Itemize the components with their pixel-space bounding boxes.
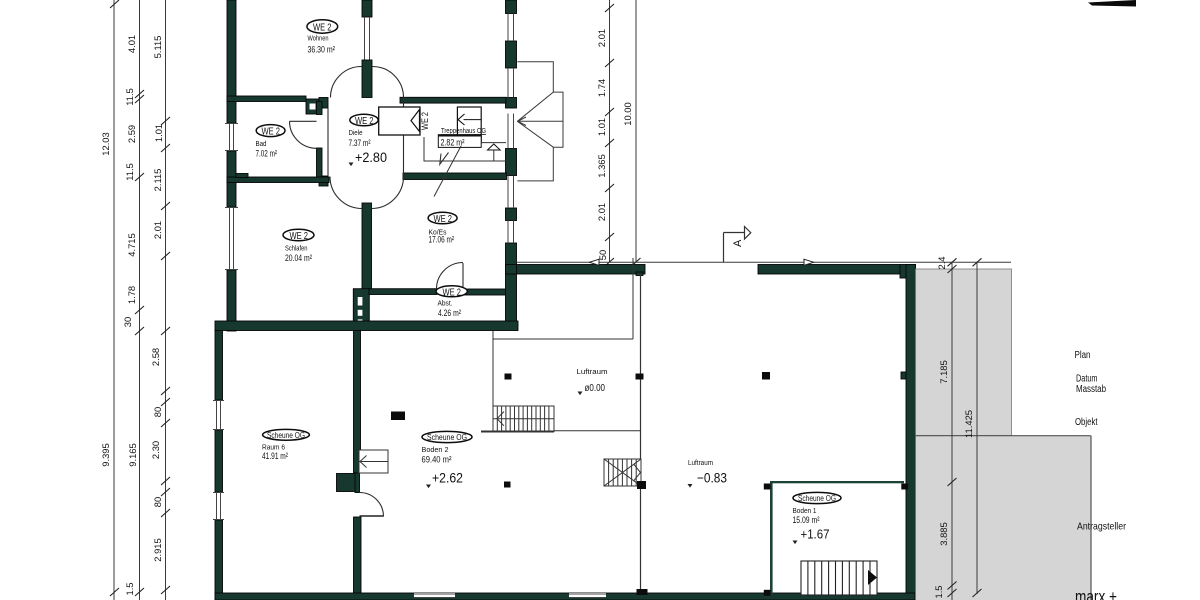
svg-text:12.03: 12.03 <box>100 132 111 155</box>
svg-text:11.5: 11.5 <box>124 88 135 106</box>
svg-text:15.09 m²: 15.09 m² <box>793 515 820 525</box>
svg-text:5.115: 5.115 <box>152 36 163 59</box>
svg-text:WE 2: WE 2 <box>262 126 281 138</box>
svg-text:ø0.00: ø0.00 <box>585 382 606 394</box>
svg-text:+1.67: +1.67 <box>801 527 830 542</box>
svg-text:WE 2: WE 2 <box>420 112 430 130</box>
svg-text:1.74: 1.74 <box>596 79 607 97</box>
svg-text:9.395: 9.395 <box>100 443 111 466</box>
svg-text:9.165: 9.165 <box>127 443 138 466</box>
svg-text:69.40 m²: 69.40 m² <box>422 455 452 465</box>
svg-text:7.37 m²: 7.37 m² <box>349 138 371 148</box>
svg-text:2.59: 2.59 <box>126 125 137 143</box>
svg-text:11.5: 11.5 <box>124 163 135 181</box>
svg-text:Wohnen: Wohnen <box>308 33 329 42</box>
svg-text:20.04 m²: 20.04 m² <box>285 253 312 263</box>
svg-text:1.01: 1.01 <box>153 124 164 142</box>
svg-text:2.4: 2.4 <box>936 256 947 269</box>
svg-text:Treppenhaus OG: Treppenhaus OG <box>441 126 486 135</box>
svg-text:−0.83: −0.83 <box>697 470 727 485</box>
svg-text:4.715: 4.715 <box>126 233 137 256</box>
svg-text:WE 2: WE 2 <box>443 286 462 298</box>
svg-text:1.5: 1.5 <box>124 582 135 595</box>
svg-text:2.01: 2.01 <box>152 221 163 239</box>
svg-text:80: 80 <box>152 407 163 417</box>
svg-text:30: 30 <box>122 317 133 327</box>
svg-text:11.425: 11.425 <box>963 410 974 438</box>
svg-text:1.01: 1.01 <box>596 118 607 136</box>
svg-text:80: 80 <box>152 497 163 507</box>
svg-text:4.01: 4.01 <box>126 35 137 53</box>
svg-text:Scheune OG: Scheune OG <box>267 431 305 440</box>
svg-text:Plan: Plan <box>1075 350 1091 361</box>
svg-text:7.185: 7.185 <box>938 360 949 383</box>
svg-text:Abst.: Abst. <box>438 299 453 308</box>
svg-text:A: A <box>732 239 744 247</box>
svg-text:1.5: 1.5 <box>933 585 944 598</box>
svg-text:WE 2: WE 2 <box>434 213 453 225</box>
svg-text:Bad: Bad <box>256 139 267 148</box>
svg-text:7.02 m²: 7.02 m² <box>256 148 278 158</box>
svg-text:WE 2: WE 2 <box>290 230 309 242</box>
svg-text:marx +: marx + <box>1075 587 1117 600</box>
svg-text:Masstab: Masstab <box>1076 384 1106 395</box>
svg-text:4.26 m²: 4.26 m² <box>438 308 461 318</box>
svg-text:1.365: 1.365 <box>596 154 607 177</box>
svg-text:Boden 2: Boden 2 <box>422 445 449 454</box>
svg-text:2.58: 2.58 <box>150 348 161 366</box>
svg-text:Antragsteller: Antragsteller <box>1077 522 1126 533</box>
svg-text:50: 50 <box>597 250 608 260</box>
svg-text:Luftraum: Luftraum <box>577 367 608 376</box>
svg-text:2.915: 2.915 <box>152 538 163 561</box>
svg-text:2.01: 2.01 <box>596 203 607 221</box>
svg-text:Luftraum: Luftraum <box>688 458 713 467</box>
svg-text:17.06 m²: 17.06 m² <box>429 235 455 245</box>
svg-text:2.01: 2.01 <box>596 29 607 47</box>
svg-text:3.885: 3.885 <box>938 522 949 545</box>
svg-text:WE 2: WE 2 <box>313 22 332 34</box>
svg-text:2.30: 2.30 <box>150 441 161 459</box>
svg-text:Boden 1: Boden 1 <box>793 506 817 515</box>
svg-text:10.00: 10.00 <box>622 102 633 125</box>
svg-text:Scheune OG: Scheune OG <box>427 433 467 442</box>
svg-text:1.78: 1.78 <box>126 286 137 304</box>
svg-text:Raum 6: Raum 6 <box>262 442 285 451</box>
svg-text:Schlafen: Schlafen <box>285 243 308 252</box>
svg-text:+2.62: +2.62 <box>432 470 463 485</box>
svg-text:41.91 m²: 41.91 m² <box>262 451 288 461</box>
svg-text:Diele: Diele <box>349 128 363 137</box>
svg-text:+2.80: +2.80 <box>355 150 387 165</box>
svg-text:Scheune OG: Scheune OG <box>798 494 836 503</box>
svg-text:WE 2: WE 2 <box>355 115 374 127</box>
svg-text:Objekt: Objekt <box>1075 417 1098 428</box>
svg-text:36.30 m²: 36.30 m² <box>308 45 336 55</box>
svg-text:2.115: 2.115 <box>152 169 163 192</box>
